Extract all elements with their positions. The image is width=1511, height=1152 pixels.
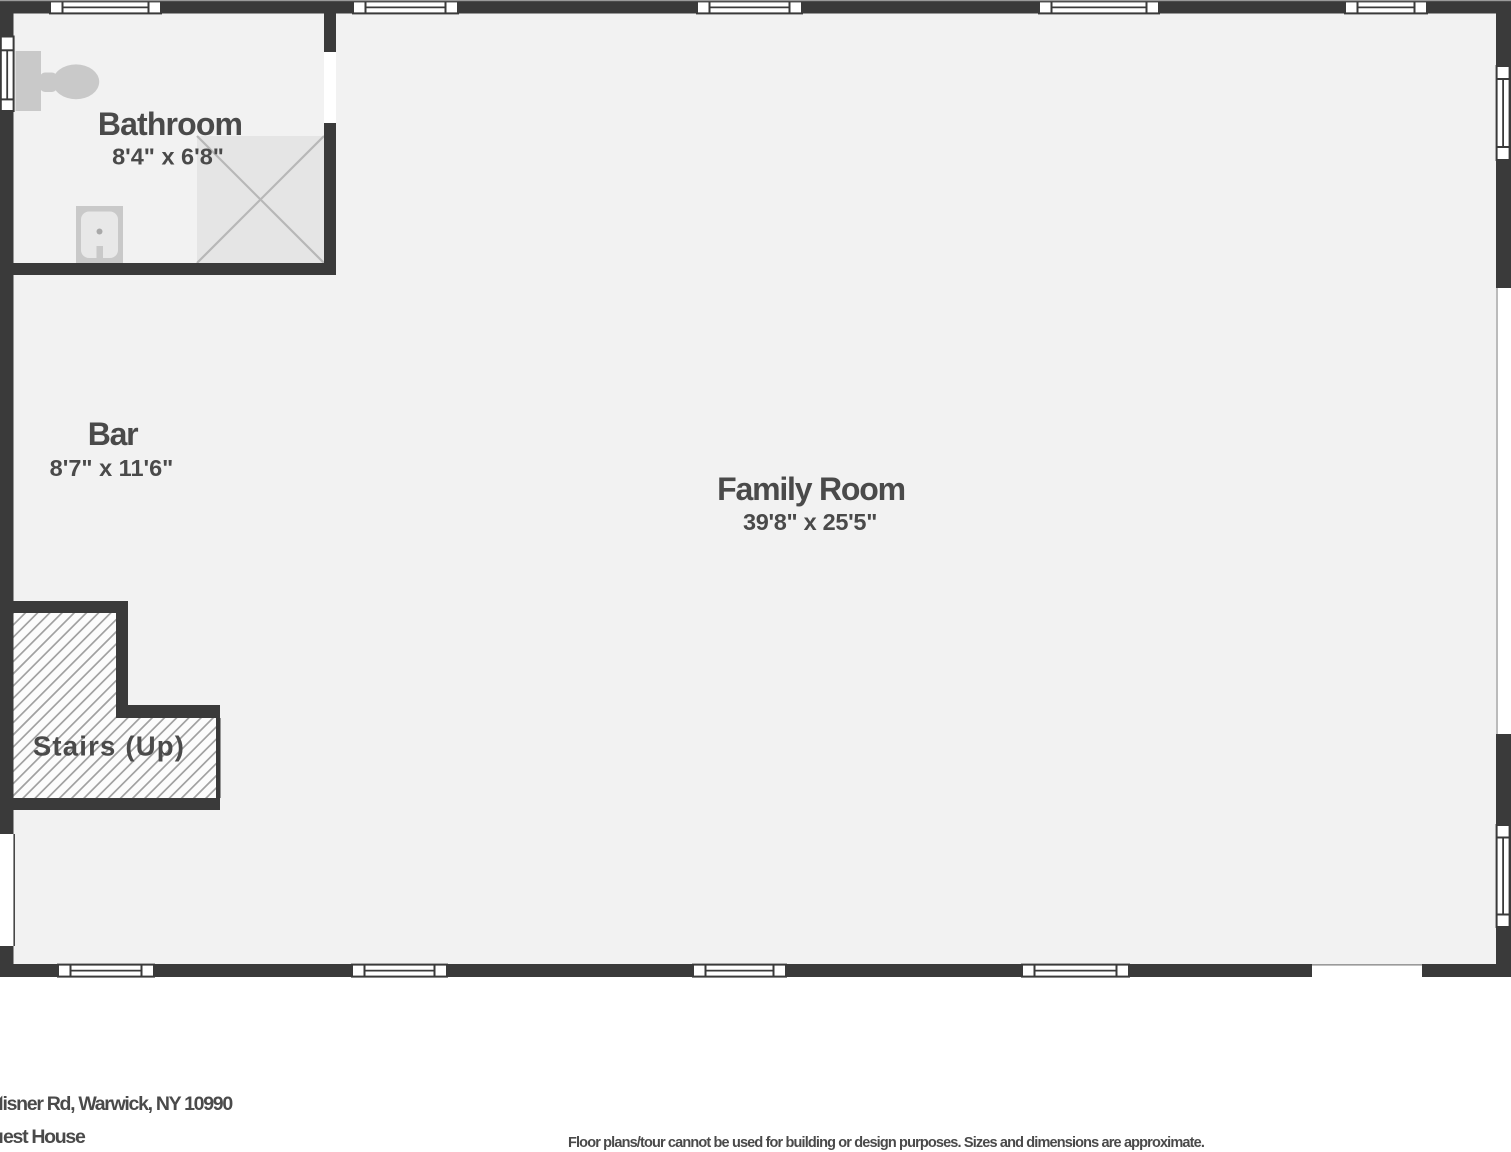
svg-text:8'4" x 6'8": 8'4" x 6'8" [112, 144, 224, 170]
svg-text:Floor plans/tour cannot be use: Floor plans/tour cannot be used for buil… [568, 1135, 1205, 1151]
svg-text:39'8" x 25'5": 39'8" x 25'5" [743, 509, 877, 535]
svg-text:8'7" x 11'6": 8'7" x 11'6" [50, 455, 174, 481]
svg-text:Stairs (Up): Stairs (Up) [33, 731, 185, 762]
svg-text:est House: est House [3, 1126, 86, 1148]
svg-text:isner Rd, Warwick, NY 10990: isner Rd, Warwick, NY 10990 [3, 1093, 234, 1115]
svg-text:Bar: Bar [88, 416, 138, 452]
svg-text:Family Room: Family Room [717, 471, 905, 507]
svg-text:Bathroom: Bathroom [98, 106, 242, 142]
